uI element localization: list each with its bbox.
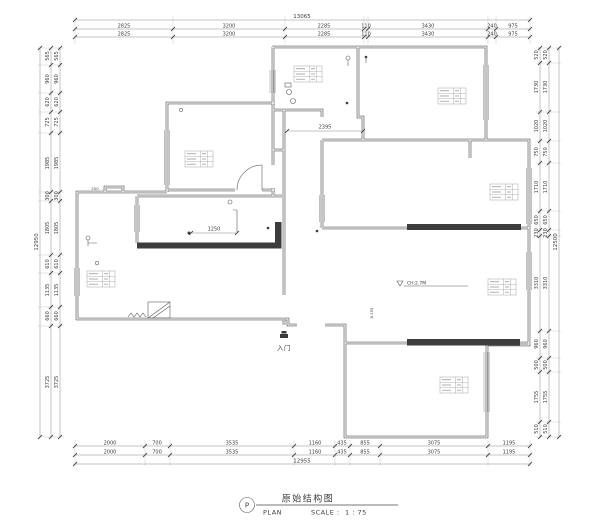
door-swing-icon	[237, 165, 262, 190]
ceiling-fixture-icon	[346, 56, 350, 60]
dim-right: 650	[543, 215, 549, 225]
opening-dim-label: 1250	[208, 227, 221, 233]
dim-left: 300	[45, 191, 51, 201]
dim-bottom: 3075	[428, 450, 441, 456]
drawing-sheet: 2395 1250 CH:2.7M 8.155 250 入门 13065 282…	[0, 0, 600, 521]
dim-right: 960	[543, 339, 549, 349]
dim-top: 975	[508, 32, 518, 38]
dim-bottom: 435	[337, 441, 347, 447]
dim-bottom: 2000	[104, 450, 117, 456]
dim-top: 2825	[118, 24, 131, 30]
dim-top-overall: 13065	[293, 14, 311, 20]
dim-top: 3200	[223, 32, 236, 38]
dim-left: 1135	[54, 284, 60, 297]
entry-label: 入门	[277, 343, 291, 352]
scale-label: SCALE :	[311, 509, 340, 517]
ceiling-fixture-icon	[179, 108, 182, 111]
dim-left: 3725	[45, 376, 51, 389]
dim-bottom: 3535	[226, 441, 239, 447]
plan-marker-letter: P	[245, 502, 249, 510]
room-table	[185, 151, 213, 167]
wall-fixture-icon	[95, 261, 99, 265]
vertical-note-label: 8.155	[369, 307, 374, 318]
dim-bottom: 700	[152, 441, 162, 447]
dim-right: 1710	[543, 181, 549, 194]
dim-right: 1020	[534, 120, 540, 133]
dim-bottom: 855	[360, 441, 370, 447]
interior-dimensions	[188, 129, 366, 235]
plan-label: PLAN	[263, 509, 282, 517]
dim-left: 1985	[54, 157, 60, 170]
dim-left: 1135	[45, 284, 51, 297]
dim-right: 1755	[534, 391, 540, 404]
beams	[137, 222, 521, 346]
corridor-dim-label: 2395	[319, 125, 332, 131]
room-table	[490, 184, 518, 200]
dim-bottom: 2000	[104, 441, 117, 447]
dim-left: 1805	[54, 222, 60, 235]
dim-bottom: 700	[152, 450, 162, 456]
dim-top: 110	[361, 32, 371, 38]
step-note-label: 250	[91, 186, 99, 191]
dim-bottom: 1195	[503, 450, 516, 456]
dim-left: 3725	[54, 376, 60, 389]
dim-right: 1730	[534, 81, 540, 94]
dim-top: 3200	[223, 24, 236, 30]
room-table	[488, 279, 516, 295]
dim-left: 725	[54, 117, 60, 127]
dim-right: 230	[534, 228, 540, 238]
dim-bottom-overall: 12955	[293, 459, 311, 465]
ceiling-dot-icon	[267, 227, 270, 230]
dim-left: 565	[54, 51, 60, 61]
dim-left: 565	[45, 51, 51, 61]
dim-right: 1755	[543, 391, 549, 404]
dimension-ticks	[38, 18, 561, 466]
ceiling-height-label: CH:2.7M	[407, 281, 426, 287]
dim-left: 725	[45, 117, 51, 127]
dim-top: 240	[487, 24, 497, 30]
title-block: P 原始结构图 PLAN SCALE : 1 : 75	[240, 493, 399, 517]
dim-right: 1710	[534, 181, 540, 194]
floor-plan-drawing: 2395 1250 CH:2.7M 8.155 250 入门 13065 282…	[0, 0, 600, 521]
meter-icon	[287, 90, 292, 95]
room-table	[294, 66, 322, 82]
dim-left: 620	[54, 97, 60, 107]
dim-bottom: 1195	[503, 441, 516, 447]
dim-top: 2285	[318, 24, 331, 30]
dim-right-overall: 12500	[553, 233, 559, 251]
dim-right: 3310	[534, 277, 540, 290]
dim-right: 1730	[543, 81, 549, 94]
dim-top: 975	[508, 24, 518, 30]
dim-left: 660	[54, 311, 60, 321]
dim-left: 610	[45, 259, 51, 269]
dim-left: 610	[54, 259, 60, 269]
dim-left: 1805	[45, 222, 51, 235]
dim-left: 960	[54, 74, 60, 84]
dim-top: 240	[487, 32, 497, 38]
dim-bottom: 1160	[309, 450, 322, 456]
dim-left: 300	[54, 191, 60, 201]
dim-bottom: 855	[360, 450, 370, 456]
dim-top: 2285	[318, 32, 331, 38]
ceiling-dot-icon	[316, 230, 319, 233]
extension-lines	[38, 16, 561, 466]
insulation-zigzag-icon	[128, 313, 146, 317]
dim-right: 750	[534, 147, 540, 157]
meter-icon	[291, 99, 296, 104]
dim-left: 620	[45, 97, 51, 107]
dim-right: 230	[543, 228, 549, 238]
scale-value: 1 : 75	[345, 509, 367, 517]
dim-bottom: 3075	[428, 441, 441, 447]
dim-top: 3430	[422, 32, 435, 38]
wall-fixture-icon	[86, 236, 90, 240]
dim-top: 2825	[118, 32, 131, 38]
dim-left: 1985	[45, 157, 51, 170]
dim-right: 650	[534, 215, 540, 225]
dim-right: 500	[534, 360, 540, 370]
dim-top: 3430	[422, 24, 435, 30]
junction-box-icon	[285, 83, 291, 87]
dim-bottom: 435	[337, 450, 347, 456]
dim-right: 510	[543, 424, 549, 434]
dim-right: 520	[543, 50, 549, 60]
dim-left-overall: 12950	[34, 233, 40, 251]
ceiling-dot-icon	[346, 102, 349, 105]
dim-left: 960	[45, 74, 51, 84]
dim-right: 500	[543, 360, 549, 370]
door-leaf-icon	[233, 210, 237, 232]
dim-right: 3310	[543, 277, 549, 290]
dim-top: 110	[361, 24, 371, 30]
dimension-lines	[40, 20, 559, 464]
room-table	[87, 271, 115, 287]
room-table	[438, 88, 466, 104]
drawing-title: 原始结构图	[282, 493, 335, 505]
entry-door-icon	[280, 331, 288, 338]
shaft-icon	[148, 302, 170, 318]
dim-right: 1020	[543, 120, 549, 133]
windows	[75, 65, 532, 412]
room-table	[440, 377, 468, 393]
dim-bottom: 1160	[309, 441, 322, 447]
dim-right: 520	[534, 50, 540, 60]
dim-right: 510	[534, 424, 540, 434]
dim-right: 960	[534, 339, 540, 349]
dim-left: 660	[45, 311, 51, 321]
dim-bottom: 3535	[226, 450, 239, 456]
dim-right: 750	[543, 147, 549, 157]
ceiling-fixture-icon	[228, 200, 232, 204]
